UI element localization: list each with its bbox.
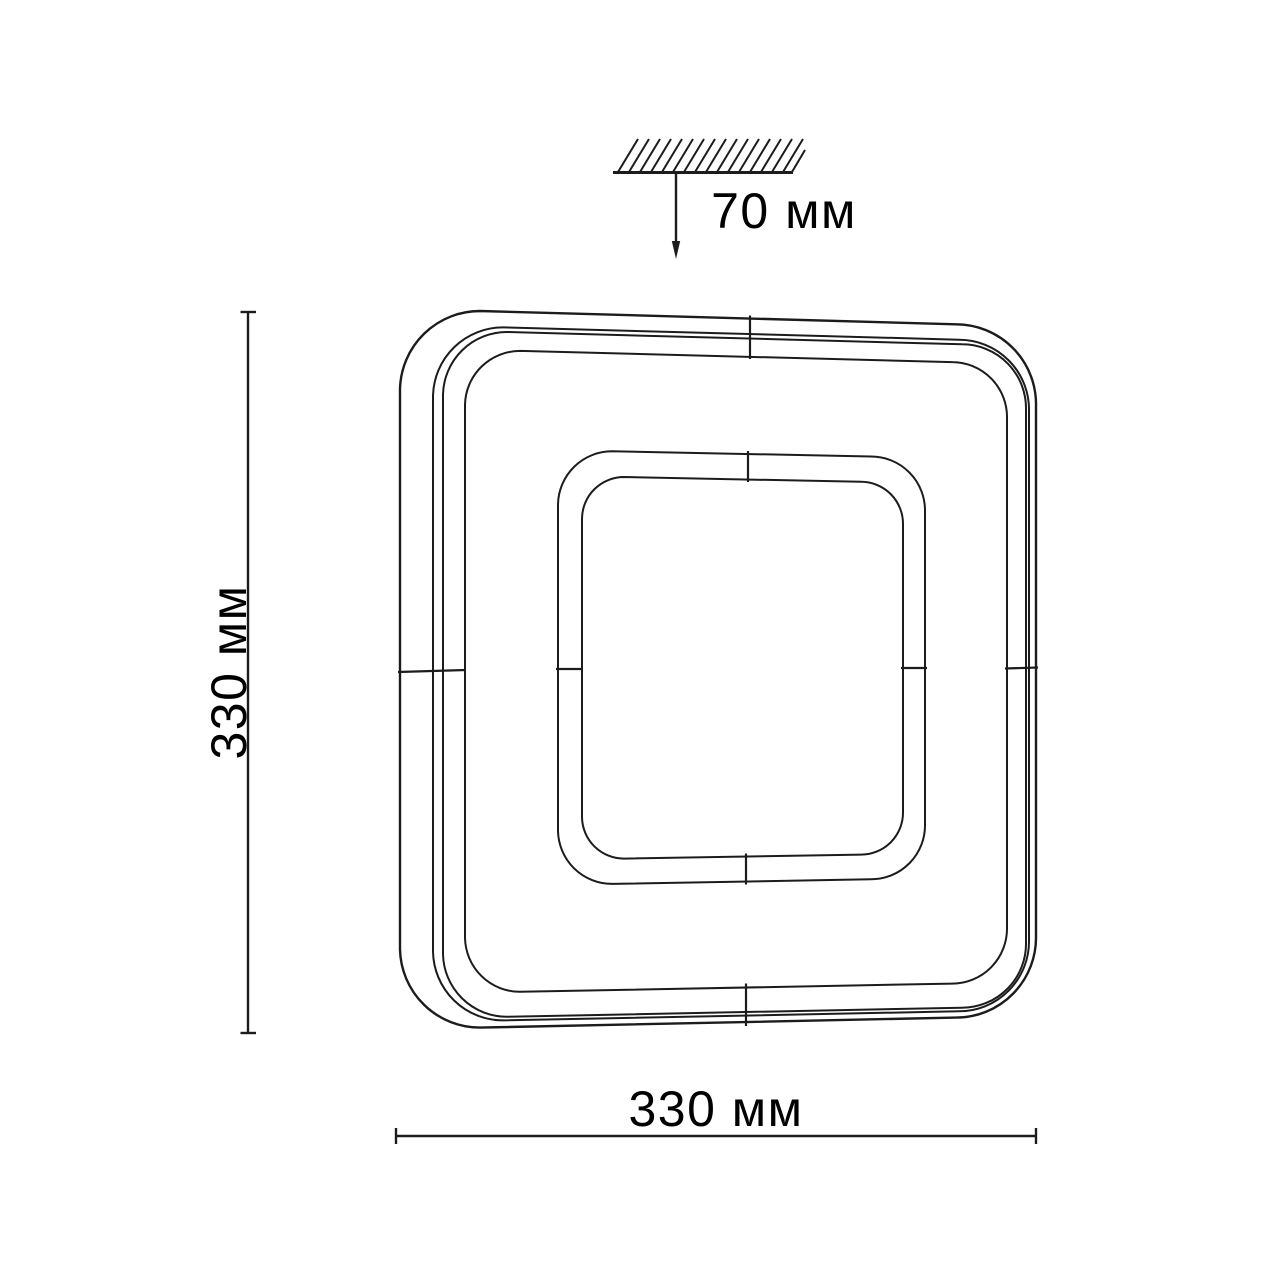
seam-tick-right (1005, 668, 1038, 669)
technical-drawing-page: 70 мм (0, 0, 1280, 1280)
fixture-dimension-drawing: 70 мм (0, 0, 1280, 1280)
width-dimension-label: 330 мм (628, 1081, 803, 1137)
depth-dimension-label: 70 мм (711, 183, 857, 239)
height-dimension-label: 330 мм (201, 584, 257, 759)
